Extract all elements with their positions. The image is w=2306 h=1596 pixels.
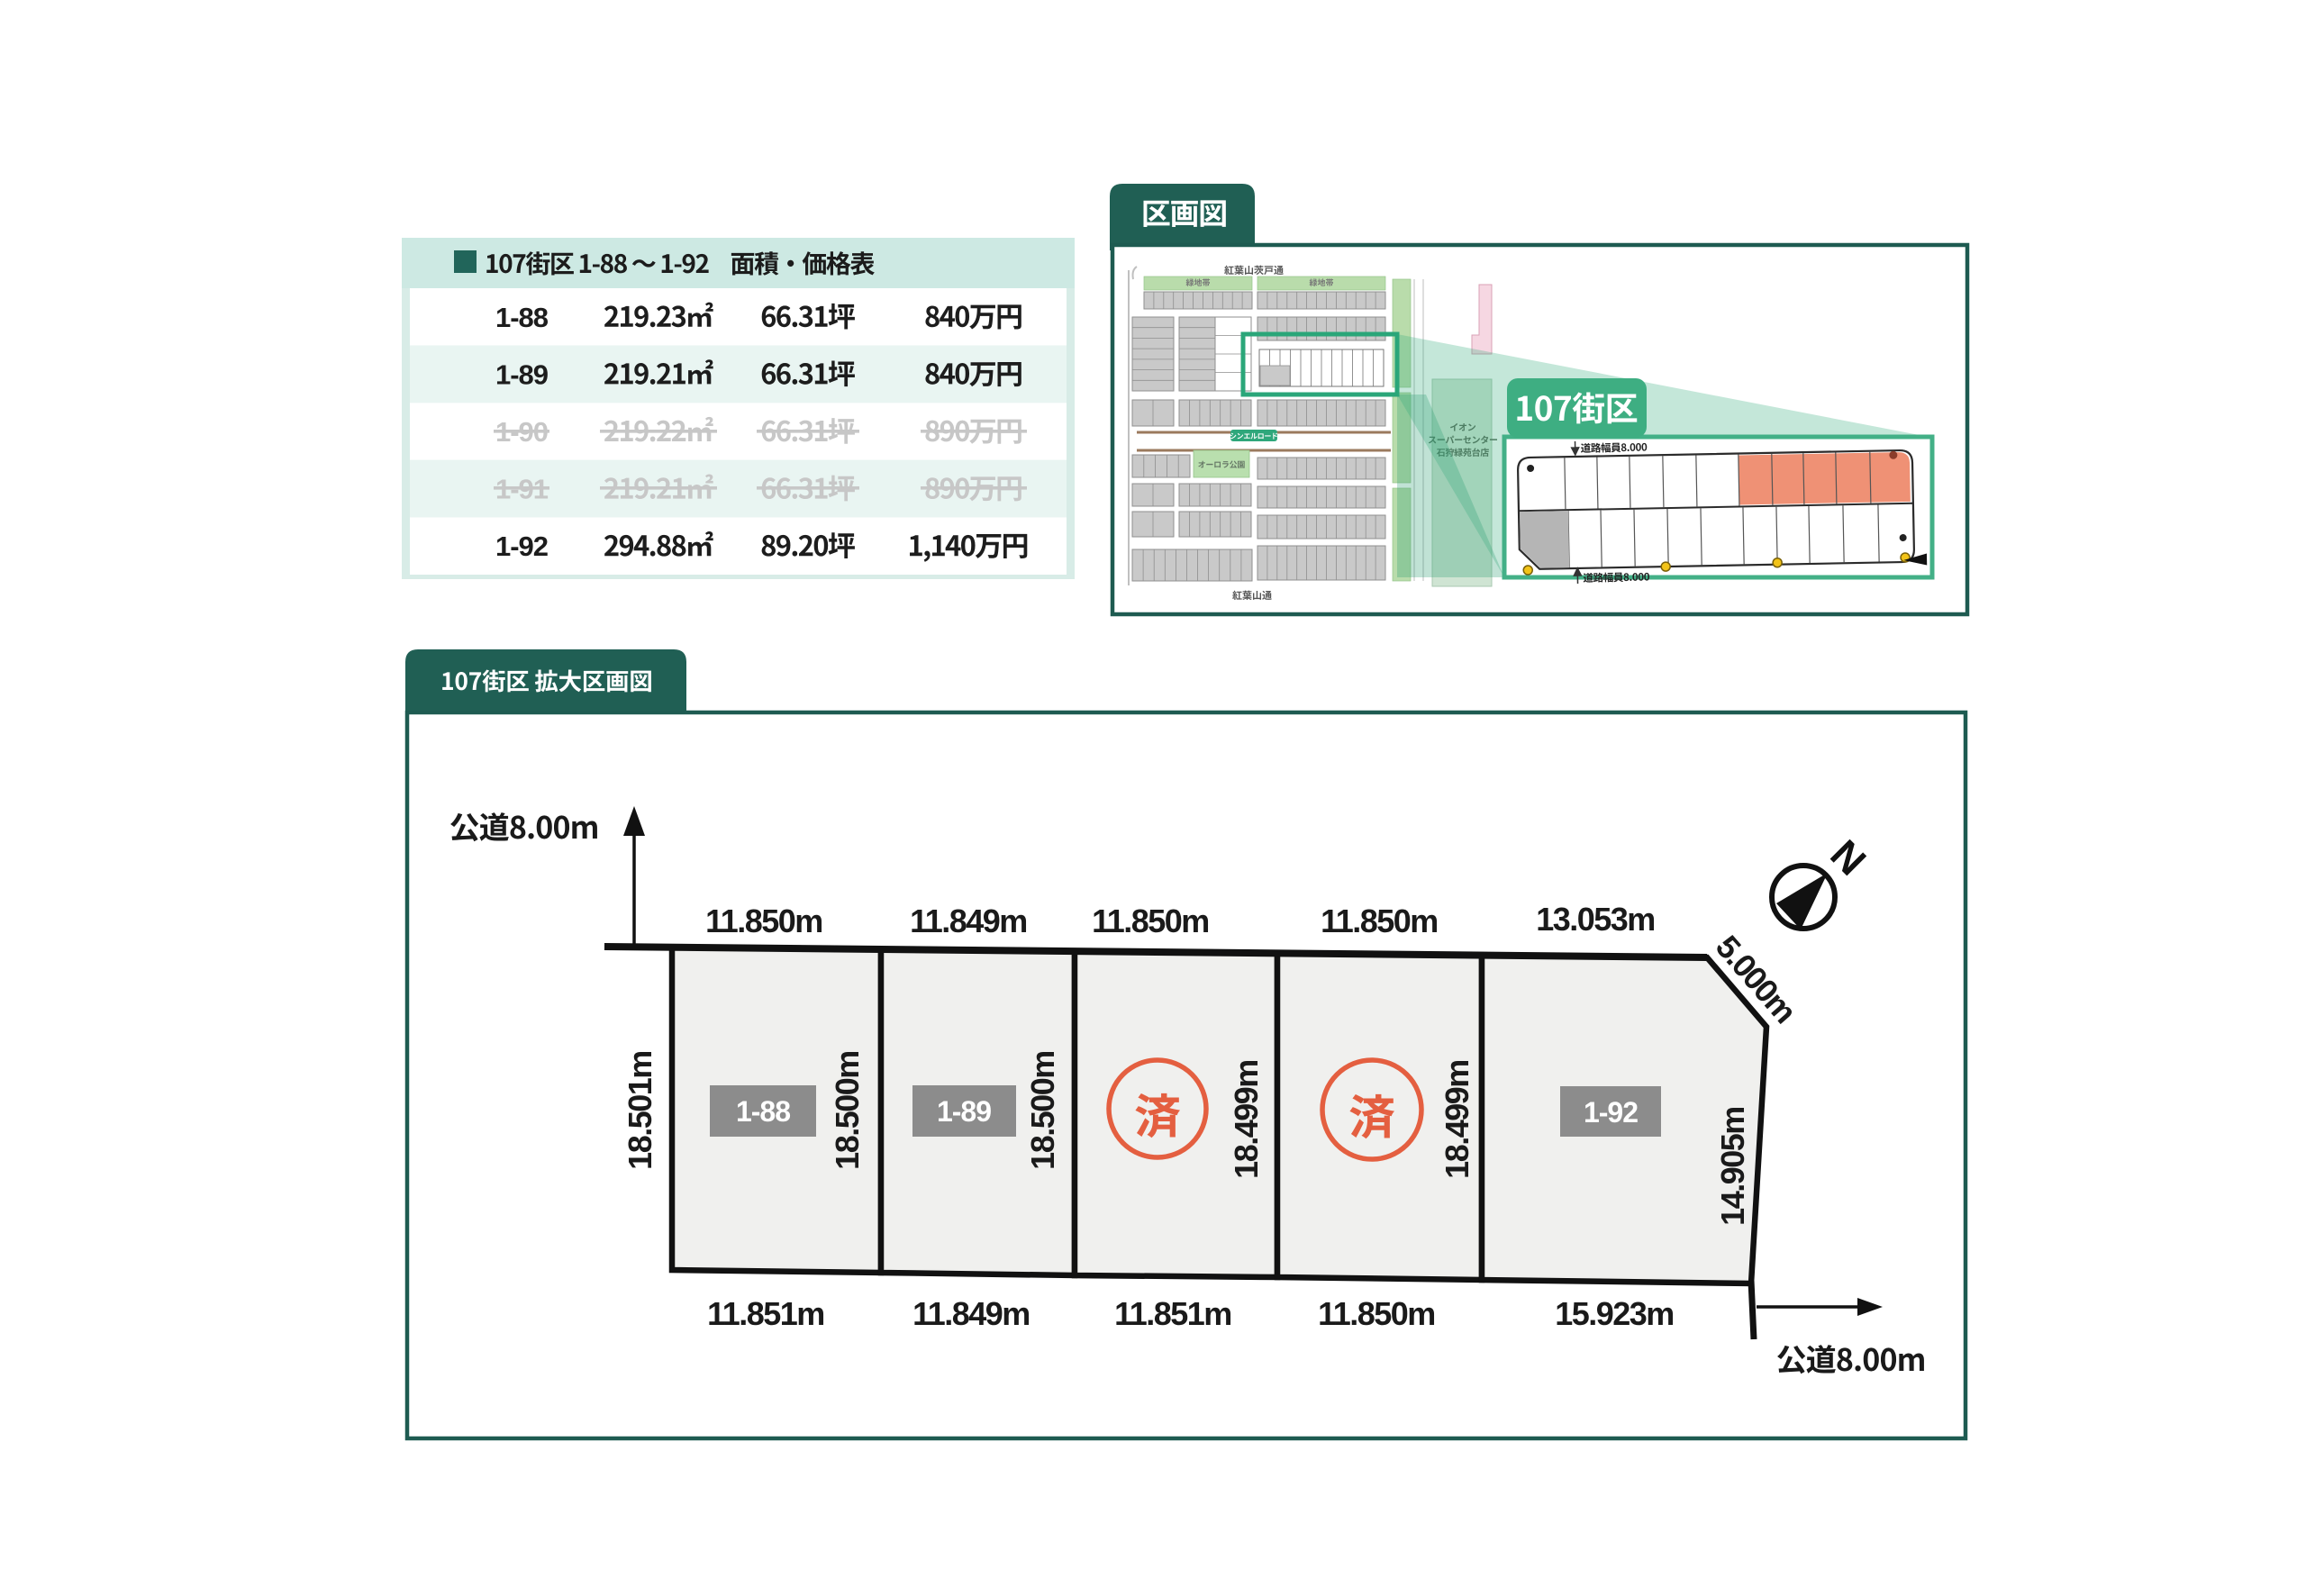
svg-text:15.923m: 15.923m <box>1555 1295 1674 1332</box>
svg-text:1-92: 1-92 <box>495 530 548 562</box>
svg-text:11.851m: 11.851m <box>1114 1295 1231 1332</box>
svg-text:1-88: 1-88 <box>495 302 549 333</box>
svg-text:11.850m: 11.850m <box>1321 902 1438 939</box>
svg-text:1-92: 1-92 <box>1584 1096 1638 1129</box>
svg-text:11.849m: 11.849m <box>910 902 1027 939</box>
svg-text:13.053m: 13.053m <box>1536 901 1655 938</box>
svg-text:14.905m: 14.905m <box>1714 1107 1751 1226</box>
svg-text:1-88: 1-88 <box>736 1095 790 1128</box>
svg-text:11.850m: 11.850m <box>705 902 822 939</box>
svg-text:18.500m: 18.500m <box>829 1051 866 1170</box>
svg-text:11.850m: 11.850m <box>1318 1295 1435 1332</box>
svg-text:1-89: 1-89 <box>937 1095 991 1128</box>
svg-text:11.850m: 11.850m <box>1092 902 1209 939</box>
svg-text:18.499m: 18.499m <box>1228 1060 1265 1179</box>
svg-text:18.501m: 18.501m <box>622 1051 658 1170</box>
svg-text:18.499m: 18.499m <box>1439 1060 1475 1179</box>
svg-text:11.851m: 11.851m <box>707 1295 824 1332</box>
svg-text:11.849m: 11.849m <box>912 1295 1030 1332</box>
svg-text:1-89: 1-89 <box>495 358 549 390</box>
svg-text:18.500m: 18.500m <box>1024 1051 1061 1170</box>
